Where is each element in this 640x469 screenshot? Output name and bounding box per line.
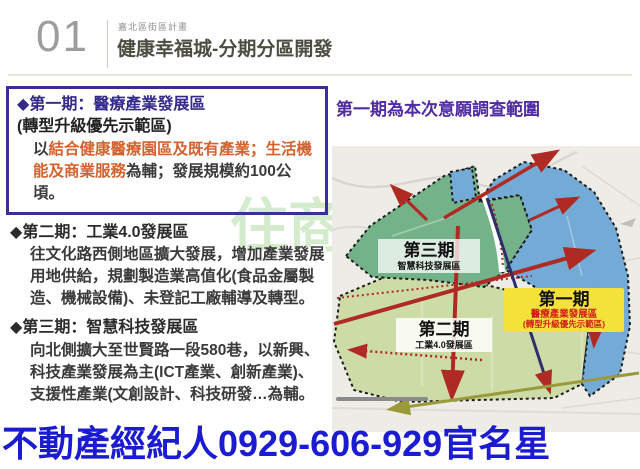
map-label-phase2-subtitle: 工業4.0發展區: [396, 340, 492, 350]
phase2-body: 往文化路西側地區擴大發展，增加產業發展用地供給，規劃製造業高值化(食品金屬製造、…: [10, 244, 328, 310]
phase3-heading-text: 第三期：智慧科技發展區: [22, 319, 198, 336]
phase1-heading: ◆第一期：醫療產業發展區: [17, 94, 319, 116]
phase3-body: 向北側擴大至世賢路一段580巷，以新興、科技產業發展為主(ICT產業、創新產業)…: [10, 340, 328, 406]
phase1-body-seg1: 以: [33, 141, 49, 158]
left-text-column: ◆第一期：醫療產業發展區 (轉型升級優先示範區) 以結合健康醫療園區及既有產業；…: [6, 86, 328, 406]
section-number: 01: [36, 12, 89, 62]
diamond-bullet-icon: ◆: [17, 96, 29, 113]
map-label-phase1-subtitle2: (轉型升級優先示範區): [504, 320, 624, 330]
phase3-heading: ◆第三期：智慧科技發展區: [10, 317, 328, 339]
map-caption: 第一期為本次意願調查範圍: [336, 95, 540, 120]
phase1-heading-text: 第一期：醫療產業發展區: [29, 96, 205, 113]
zone-blue-small-polygon: [450, 168, 476, 203]
phase1-body: 以結合健康醫療園區及既有產業；生活機能及商業服務為輔；發展規模約100公頃。: [17, 139, 319, 205]
map-label-phase2: 第二期 工業4.0發展區: [396, 318, 492, 352]
map-label-phase1: 第一期 醫療產業發展區 (轉型升級優先示範區): [504, 288, 624, 332]
phase2-heading: ◆第二期：工業4.0發展區: [10, 222, 328, 244]
phase1-highlight-box: ◆第一期：醫療產業發展區 (轉型升級優先示範區) 以結合健康醫療園區及既有產業；…: [6, 86, 328, 215]
header-divider: [107, 20, 108, 68]
phase3-section: ◆第三期：智慧科技發展區 向北側擴大至世賢路一段580巷，以新興、科技產業發展為…: [6, 317, 328, 405]
diamond-bullet-icon: ◆: [10, 224, 22, 241]
map-label-phase3-subtitle: 智慧科技發展區: [378, 261, 480, 271]
presentation-slide: 01 嘉北區街區計畫 健康幸福城-分期分區開發 住商 ◆第一期：醫療產業發展區 …: [0, 0, 640, 469]
map-label-phase2-title: 第二期: [396, 320, 492, 340]
map-label-phase1-title: 第一期: [504, 290, 624, 310]
header-rule: [8, 74, 632, 76]
map-label-phase3-title: 第三期: [378, 241, 480, 261]
map-label-phase3: 第三期 智慧科技發展區: [378, 239, 480, 273]
map-scale-bar: [336, 397, 428, 401]
phase1-subheading: (轉型升級優先示範區): [17, 116, 319, 138]
header-eyebrow: 嘉北區街區計畫: [118, 20, 188, 33]
page-title: 健康幸福城-分期分區開發: [117, 34, 332, 61]
phase2-section: ◆第二期：工業4.0發展區 往文化路西側地區擴大發展，增加產業發展用地供給，規劃…: [6, 222, 328, 310]
diamond-bullet-icon: ◆: [10, 319, 22, 336]
development-map: 第三期 智慧科技發展區 第二期 工業4.0發展區 第一期 醫療產業發展區 (轉型…: [332, 146, 640, 432]
phase2-heading-text: 第二期：工業4.0發展區: [22, 224, 188, 241]
realtor-ad-banner: 不動產經紀人0929-606-929官名星: [2, 415, 550, 467]
